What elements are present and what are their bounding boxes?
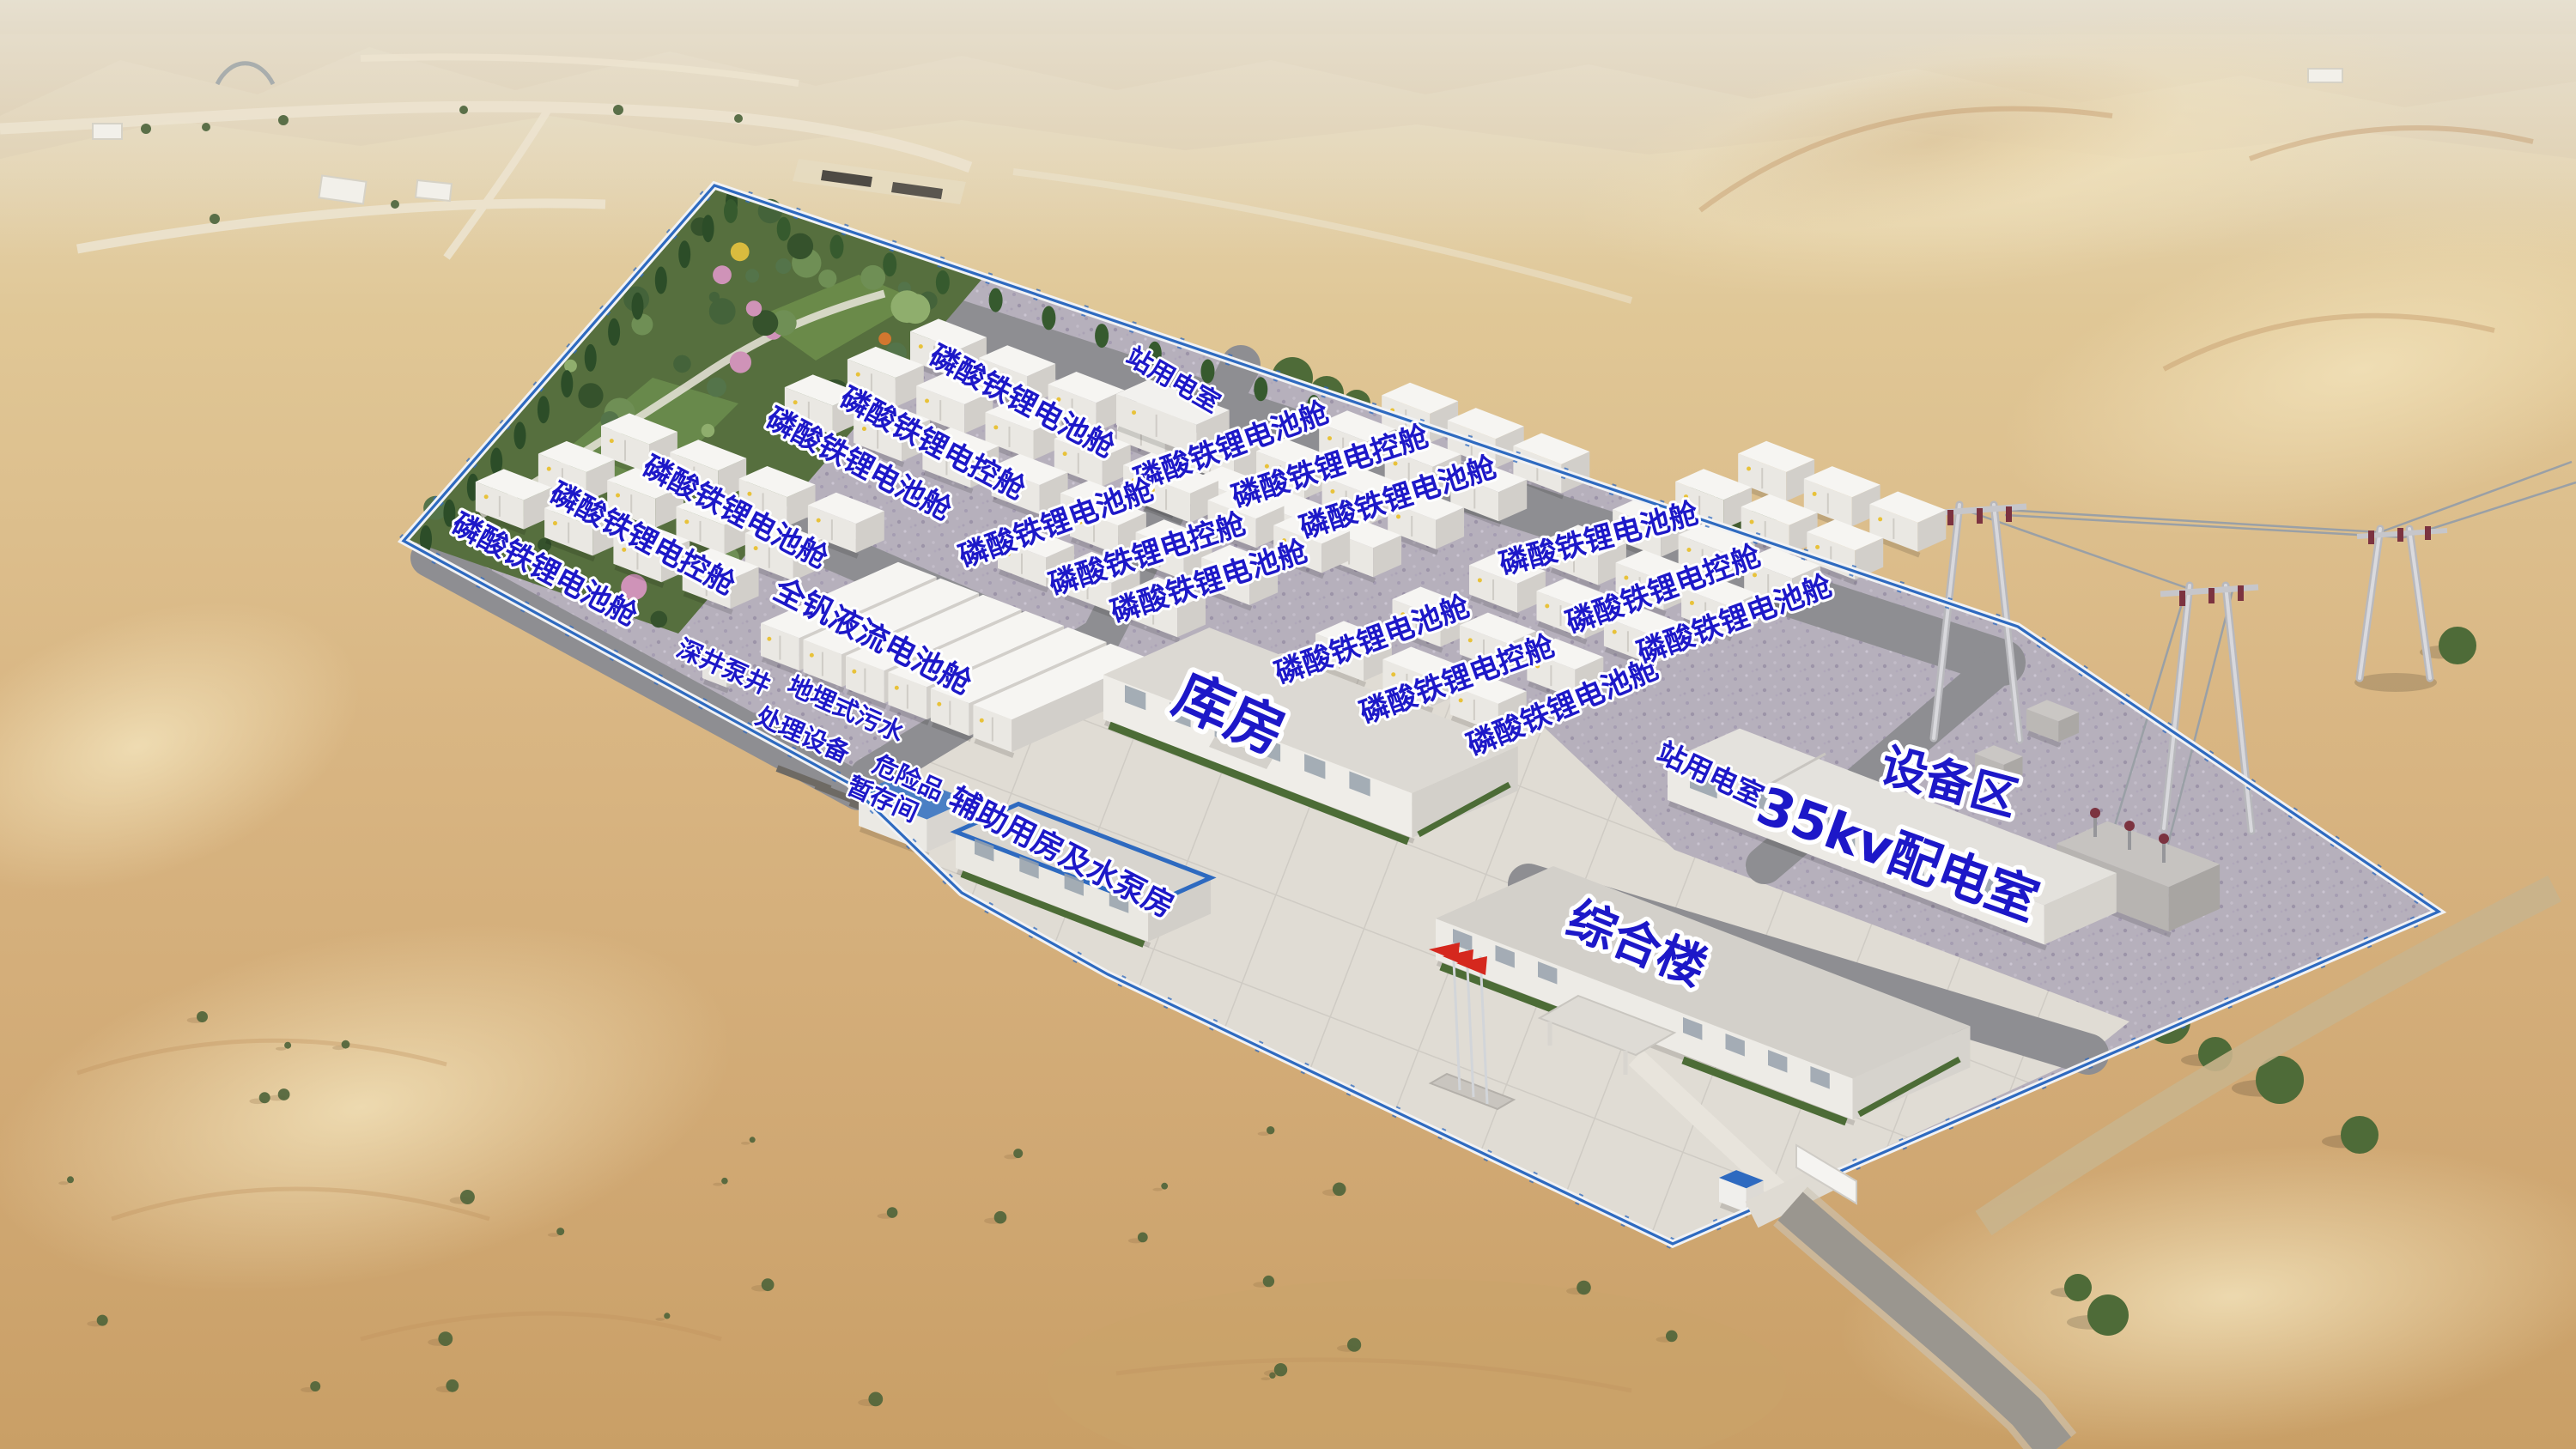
battery-container-hazard-dot [1459, 698, 1463, 702]
battery-container-hazard-dot [1063, 452, 1067, 456]
flow-battery-container-hazard-dot [895, 686, 899, 690]
cypress-tree [1254, 377, 1267, 401]
shrub [1577, 1281, 1591, 1295]
garden-tree [818, 270, 836, 288]
insulators-part [2006, 506, 2012, 522]
shrub-shadow [713, 1183, 722, 1186]
shrub [1666, 1331, 1678, 1343]
garden-tree [702, 424, 715, 438]
shrub [1138, 1233, 1148, 1243]
cypress-tree [632, 293, 644, 320]
flow-battery-container-hazard-dot [852, 670, 856, 674]
shrub [259, 1092, 270, 1103]
garden-tree [746, 300, 762, 316]
shrub [1013, 1149, 1023, 1158]
battery-container-hazard-dot [616, 494, 620, 498]
bushing-cap [2090, 808, 2100, 818]
battery-container-hazard-dot [747, 492, 751, 496]
transmission-pylon-part-part [2368, 530, 2374, 544]
battery-container-hazard-dot [610, 439, 614, 443]
roadside-tree [2439, 627, 2476, 664]
shrub [664, 1313, 670, 1319]
battery-container-hazard-dot [1690, 601, 1694, 605]
battery-container-hazard-dot [1750, 519, 1754, 524]
battery-container-hazard-dot [547, 467, 551, 471]
battery-container-hazard-dot [1391, 672, 1395, 676]
shrub [460, 1190, 475, 1204]
shrub-shadow [741, 1142, 750, 1145]
distant-trees-part [202, 123, 210, 131]
battery-container-hazard-dot [1815, 545, 1820, 549]
battery-container-hazard-dot [484, 494, 489, 499]
cypress-tree [585, 344, 597, 372]
insulators-part [2238, 585, 2244, 601]
battery-container-hazard-dot [793, 400, 798, 404]
battery-container-hazard-dot [1686, 548, 1691, 552]
shrub [868, 1392, 883, 1407]
aerial-rendering: 磷酸铁锂电池舱磷酸铁锂电控舱磷酸铁锂电池舱磷酸铁锂电池舱磷酸铁锂电控舱磷酸铁锂电… [0, 0, 2576, 1449]
shrub-shadow [276, 1047, 286, 1051]
cypress-tree [608, 318, 620, 346]
battery-container-hazard-dot [856, 373, 860, 377]
distant-buildings-part [93, 124, 122, 139]
shrub [67, 1176, 74, 1183]
battery-container-hazard-dot [1327, 436, 1332, 440]
roadside-tree [2341, 1116, 2379, 1154]
cypress-tree [514, 421, 526, 449]
shrub [1161, 1183, 1168, 1190]
garden-tree [673, 355, 691, 373]
shrub [721, 1178, 728, 1185]
transmission-pylon-part-part [2397, 528, 2403, 542]
shrub-shadow [1261, 1377, 1270, 1380]
flow-battery-container-hazard-dot [767, 637, 771, 641]
distant-trees-part [141, 124, 151, 134]
battery-container-hazard-dot [684, 519, 689, 524]
distant-buildings-part [416, 180, 452, 201]
insulators-part [1977, 508, 1983, 524]
insulators-part [2208, 588, 2215, 603]
battery-container-hazard-dot [1330, 489, 1334, 494]
distant-trees-part [391, 200, 399, 209]
insulators-part [2179, 591, 2185, 606]
flow-battery-container-hazard-dot [937, 702, 941, 706]
shrub [1267, 1126, 1274, 1134]
cypress-tree [538, 396, 550, 423]
roadside-tree [2087, 1294, 2129, 1336]
transmission-pylon-part-part [2425, 526, 2431, 540]
garden-tree [890, 290, 923, 323]
battery-container-hazard-dot [1468, 638, 1473, 642]
shrub [446, 1379, 459, 1392]
battery-container-hazard-dot [1878, 517, 1882, 521]
shrub [310, 1381, 320, 1391]
cypress-tree [678, 240, 690, 268]
shrub [750, 1137, 756, 1143]
battery-container-hazard-dot [919, 344, 923, 349]
shrub [556, 1228, 564, 1235]
garden-tree [578, 383, 603, 408]
cypress-tree [655, 267, 667, 294]
shrub [284, 1042, 291, 1049]
distant-trees-part [278, 115, 289, 125]
battery-container-hazard-dot [993, 425, 998, 429]
shrub [197, 1011, 208, 1022]
shrub [278, 1088, 290, 1100]
battery-container-hazard-dot [1265, 464, 1269, 469]
garden-tree [775, 258, 791, 274]
flow-battery-container-hazard-dot [980, 718, 984, 723]
shrub [97, 1315, 108, 1326]
battery-container-hazard-dot [1624, 576, 1628, 580]
battery-container-hazard-dot [754, 546, 758, 550]
garden-tree [707, 378, 726, 397]
bushing-cap [2124, 821, 2135, 831]
shrub-shadow [58, 1181, 69, 1185]
cypress-tree [724, 199, 738, 223]
battery-container-hazard-dot [817, 518, 821, 523]
shrub [762, 1278, 775, 1291]
garden-tree [730, 351, 751, 373]
shrub [438, 1331, 453, 1346]
cypress-tree [989, 288, 1003, 312]
shrub [1333, 1183, 1346, 1197]
garden-tree [787, 233, 813, 259]
battery-container-hazard-dot [1613, 630, 1617, 634]
distant-buildings-part [2308, 69, 2342, 82]
garden-tree [731, 242, 750, 261]
garden-tree [878, 332, 891, 345]
shrub [342, 1040, 350, 1049]
battery-container-hazard-dot [1478, 578, 1482, 582]
bushing-cap [2159, 834, 2169, 844]
garden-tree [745, 269, 759, 282]
distant-trees-part [734, 114, 743, 123]
cypress-tree [1095, 324, 1109, 348]
transmission-pylon-part [2354, 673, 2437, 692]
cypress-tree [702, 215, 714, 242]
shrub [994, 1211, 1007, 1224]
distant-trees-part [613, 105, 623, 115]
battery-container-hazard-dot [925, 399, 929, 403]
cypress-tree [1042, 306, 1055, 330]
battery-container-hazard-dot [1747, 467, 1751, 471]
shrub-shadow [655, 1318, 665, 1321]
shrub [1347, 1338, 1361, 1352]
cypress-tree [936, 270, 950, 294]
station-power-container-hazard-dot [1132, 410, 1136, 415]
shrub [1274, 1363, 1287, 1376]
cypress-tree [777, 217, 791, 241]
battery-container-hazard-dot [1813, 492, 1817, 496]
garden-tree [651, 611, 668, 628]
shrub [887, 1207, 898, 1218]
cypress-tree [561, 370, 573, 397]
scene-svg: 磷酸铁锂电池舱磷酸铁锂电控舱磷酸铁锂电池舱磷酸铁锂电池舱磷酸铁锂电控舱磷酸铁锂电… [0, 0, 2576, 1449]
battery-container-hazard-dot [553, 521, 557, 525]
cypress-tree [830, 235, 844, 259]
cypress-tree [883, 252, 896, 276]
roadside-tree [2064, 1274, 2092, 1301]
garden-tree [860, 265, 885, 290]
garden-tree [713, 265, 732, 284]
shrub [1263, 1276, 1274, 1287]
shrub-shadow [1152, 1188, 1163, 1191]
flow-battery-container-hazard-dot [810, 653, 814, 658]
battery-container-hazard-dot [1545, 604, 1549, 609]
distant-trees-part [459, 106, 468, 114]
insulators-part [1947, 510, 1953, 525]
distant-trees-part [210, 214, 220, 224]
garden-tree [709, 298, 736, 324]
